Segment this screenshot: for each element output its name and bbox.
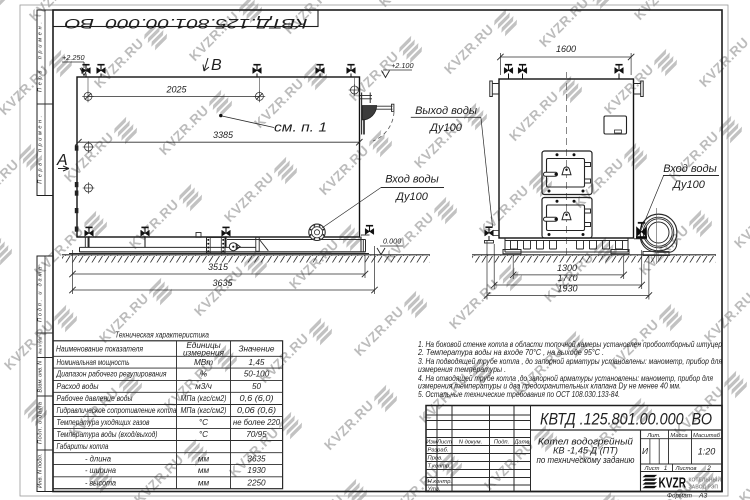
svg-text:Разраб.: Разраб.	[428, 448, 449, 454]
svg-text:- ширина: - ширина	[85, 466, 116, 475]
svg-text:м3/ч: м3/ч	[195, 382, 212, 391]
svg-text:Расход воды: Расход воды	[57, 382, 99, 391]
svg-text:Диапазон рабочего регулировани: Диапазон рабочего регулирования	[56, 370, 167, 379]
svg-text:Утв.: Утв.	[427, 487, 441, 493]
svg-text:И: И	[642, 446, 649, 456]
svg-text:Подп. и дата: Подп. и дата	[38, 402, 44, 444]
svg-text:0.000: 0.000	[383, 237, 401, 246]
svg-text:Н.контр.: Н.контр.	[428, 479, 453, 485]
svg-text:Выход воды: Выход воды	[415, 105, 477, 117]
svg-text:Масса: Масса	[670, 433, 688, 439]
svg-text:мм: мм	[198, 454, 210, 463]
svg-text:Формат: Формат	[667, 493, 692, 500]
svg-text:%: %	[200, 370, 207, 379]
svg-text:70/95: 70/95	[246, 430, 267, 439]
svg-text:Дата: Дата	[513, 440, 530, 446]
svg-text:Наименование показателя: Наименование показателя	[56, 345, 144, 354]
svg-text:Лит.: Лит.	[646, 433, 661, 439]
svg-text:2250: 2250	[246, 478, 266, 487]
svg-text:5. Остальные технические треб: 5. Остальные технические требования по О…	[418, 390, 620, 399]
svg-text:1: 1	[664, 465, 668, 472]
svg-text:Перв. примен.: Перв. примен.	[38, 116, 44, 184]
svg-text:Вход воды: Вход воды	[663, 163, 716, 175]
svg-text:см. п. 1: см. п. 1	[274, 121, 327, 135]
svg-text:Инв. N подл.: Инв. N подл.	[38, 454, 44, 489]
svg-text:по техническому заданию: по техническому заданию	[537, 455, 635, 466]
svg-text:КВТД .125.801.00.000 ВО: КВТД .125.801.00.000 ВО	[540, 410, 712, 429]
svg-text:Т.контр.: Т.контр.	[428, 464, 451, 470]
svg-text:Инв. N дубл.: Инв. N дубл.	[38, 337, 44, 355]
svg-text:Подп. и дата: Подп. и дата	[38, 267, 44, 322]
svg-text:не более 220: не более 220	[233, 418, 280, 427]
svg-text:Ду100: Ду100	[394, 191, 429, 203]
svg-text:- длина: - длина	[85, 454, 111, 463]
svg-text:Изм: Изм	[426, 440, 437, 446]
svg-text:1,45: 1,45	[249, 358, 265, 367]
svg-text:Листов: Листов	[674, 466, 696, 472]
svg-text:МПа (кгс/см2): МПа (кгс/см2)	[181, 406, 227, 415]
svg-text:°С: °С	[199, 418, 208, 427]
svg-text:МВт: МВт	[194, 358, 213, 367]
svg-text:Вход воды: Вход воды	[385, 174, 438, 186]
svg-text:- высота: - высота	[85, 478, 116, 487]
svg-text:Рабочее давление воды: Рабочее давление воды	[57, 394, 133, 403]
svg-text:мм: мм	[198, 466, 210, 475]
svg-text:Гидравлическое сопротивление к: Гидравлическое сопротивление котла	[57, 406, 177, 415]
svg-text:Номинальная мощность: Номинальная мощность	[57, 358, 130, 367]
svg-text:2: 2	[706, 465, 711, 472]
svg-text:мм: мм	[198, 478, 210, 487]
svg-text:1930: 1930	[557, 284, 577, 294]
svg-text:Техническая характеристика: Техническая характеристика	[115, 330, 209, 340]
svg-text:измерения: измерения	[183, 348, 225, 357]
svg-text:2025: 2025	[165, 85, 187, 95]
svg-text:Масштаб: Масштаб	[693, 433, 721, 439]
svg-text:Габариты котла: Габариты котла	[57, 442, 109, 451]
svg-text:1300: 1300	[557, 263, 577, 273]
svg-text:Лист: Лист	[436, 440, 452, 446]
svg-text:0,6 (6,0): 0,6 (6,0)	[240, 394, 274, 403]
svg-text:A: A	[56, 152, 68, 169]
svg-text:1:20: 1:20	[698, 447, 716, 457]
svg-text:3635: 3635	[212, 278, 233, 288]
svg-text:МПа (кгс/см2): МПа (кгс/см2)	[181, 394, 227, 403]
svg-text:KVZR: KVZR	[659, 475, 687, 492]
svg-text:°С: °С	[199, 430, 208, 439]
svg-text:Ду100: Ду100	[671, 179, 706, 191]
svg-text:3635: 3635	[247, 454, 266, 463]
svg-text:Пров.: Пров.	[428, 456, 443, 462]
svg-text:+2.250: +2.250	[62, 53, 85, 62]
svg-text:1600: 1600	[556, 44, 576, 54]
svg-text:ЗАВОД РЭП: ЗАВОД РЭП	[689, 485, 719, 491]
svg-text:КОТЕЛЬНЫЙ: КОТЕЛЬНЫЙ	[689, 476, 722, 484]
svg-text:3515: 3515	[208, 262, 229, 272]
svg-text:Температура уходящих газов: Температура уходящих газов	[57, 418, 151, 427]
svg-text:Ду100: Ду100	[428, 122, 463, 134]
svg-text:50: 50	[252, 382, 262, 391]
svg-text:Взам. инв. N: Взам. инв. N	[38, 361, 44, 393]
svg-text:измерения температуры .: измерения температуры .	[418, 365, 506, 374]
svg-text:1770: 1770	[557, 273, 577, 283]
svg-text:50-100: 50-100	[244, 370, 270, 379]
svg-text:Подп.: Подп.	[494, 440, 509, 446]
svg-text:3385: 3385	[213, 130, 234, 140]
svg-text:0,06 (0,6): 0,06 (0,6)	[237, 406, 276, 415]
svg-text:Температура воды (вход/выход): Температура воды (вход/выход)	[57, 430, 158, 439]
svg-text:Лист: Лист	[644, 466, 660, 472]
svg-text:+2.100: +2.100	[391, 61, 414, 70]
svg-text:1930: 1930	[247, 466, 266, 475]
svg-text:B: B	[211, 57, 222, 74]
svg-text:А3: А3	[698, 493, 708, 500]
svg-text:Значение: Значение	[239, 345, 275, 354]
svg-text:N докум.: N докум.	[459, 440, 482, 446]
svg-text:КВТД.125.801.00.000 ВО: КВТД.125.801.00.000 ВО	[64, 16, 308, 31]
svg-text:2. Температура воды на входе: 2. Температура воды на входе 70°С , на в…	[417, 348, 604, 357]
